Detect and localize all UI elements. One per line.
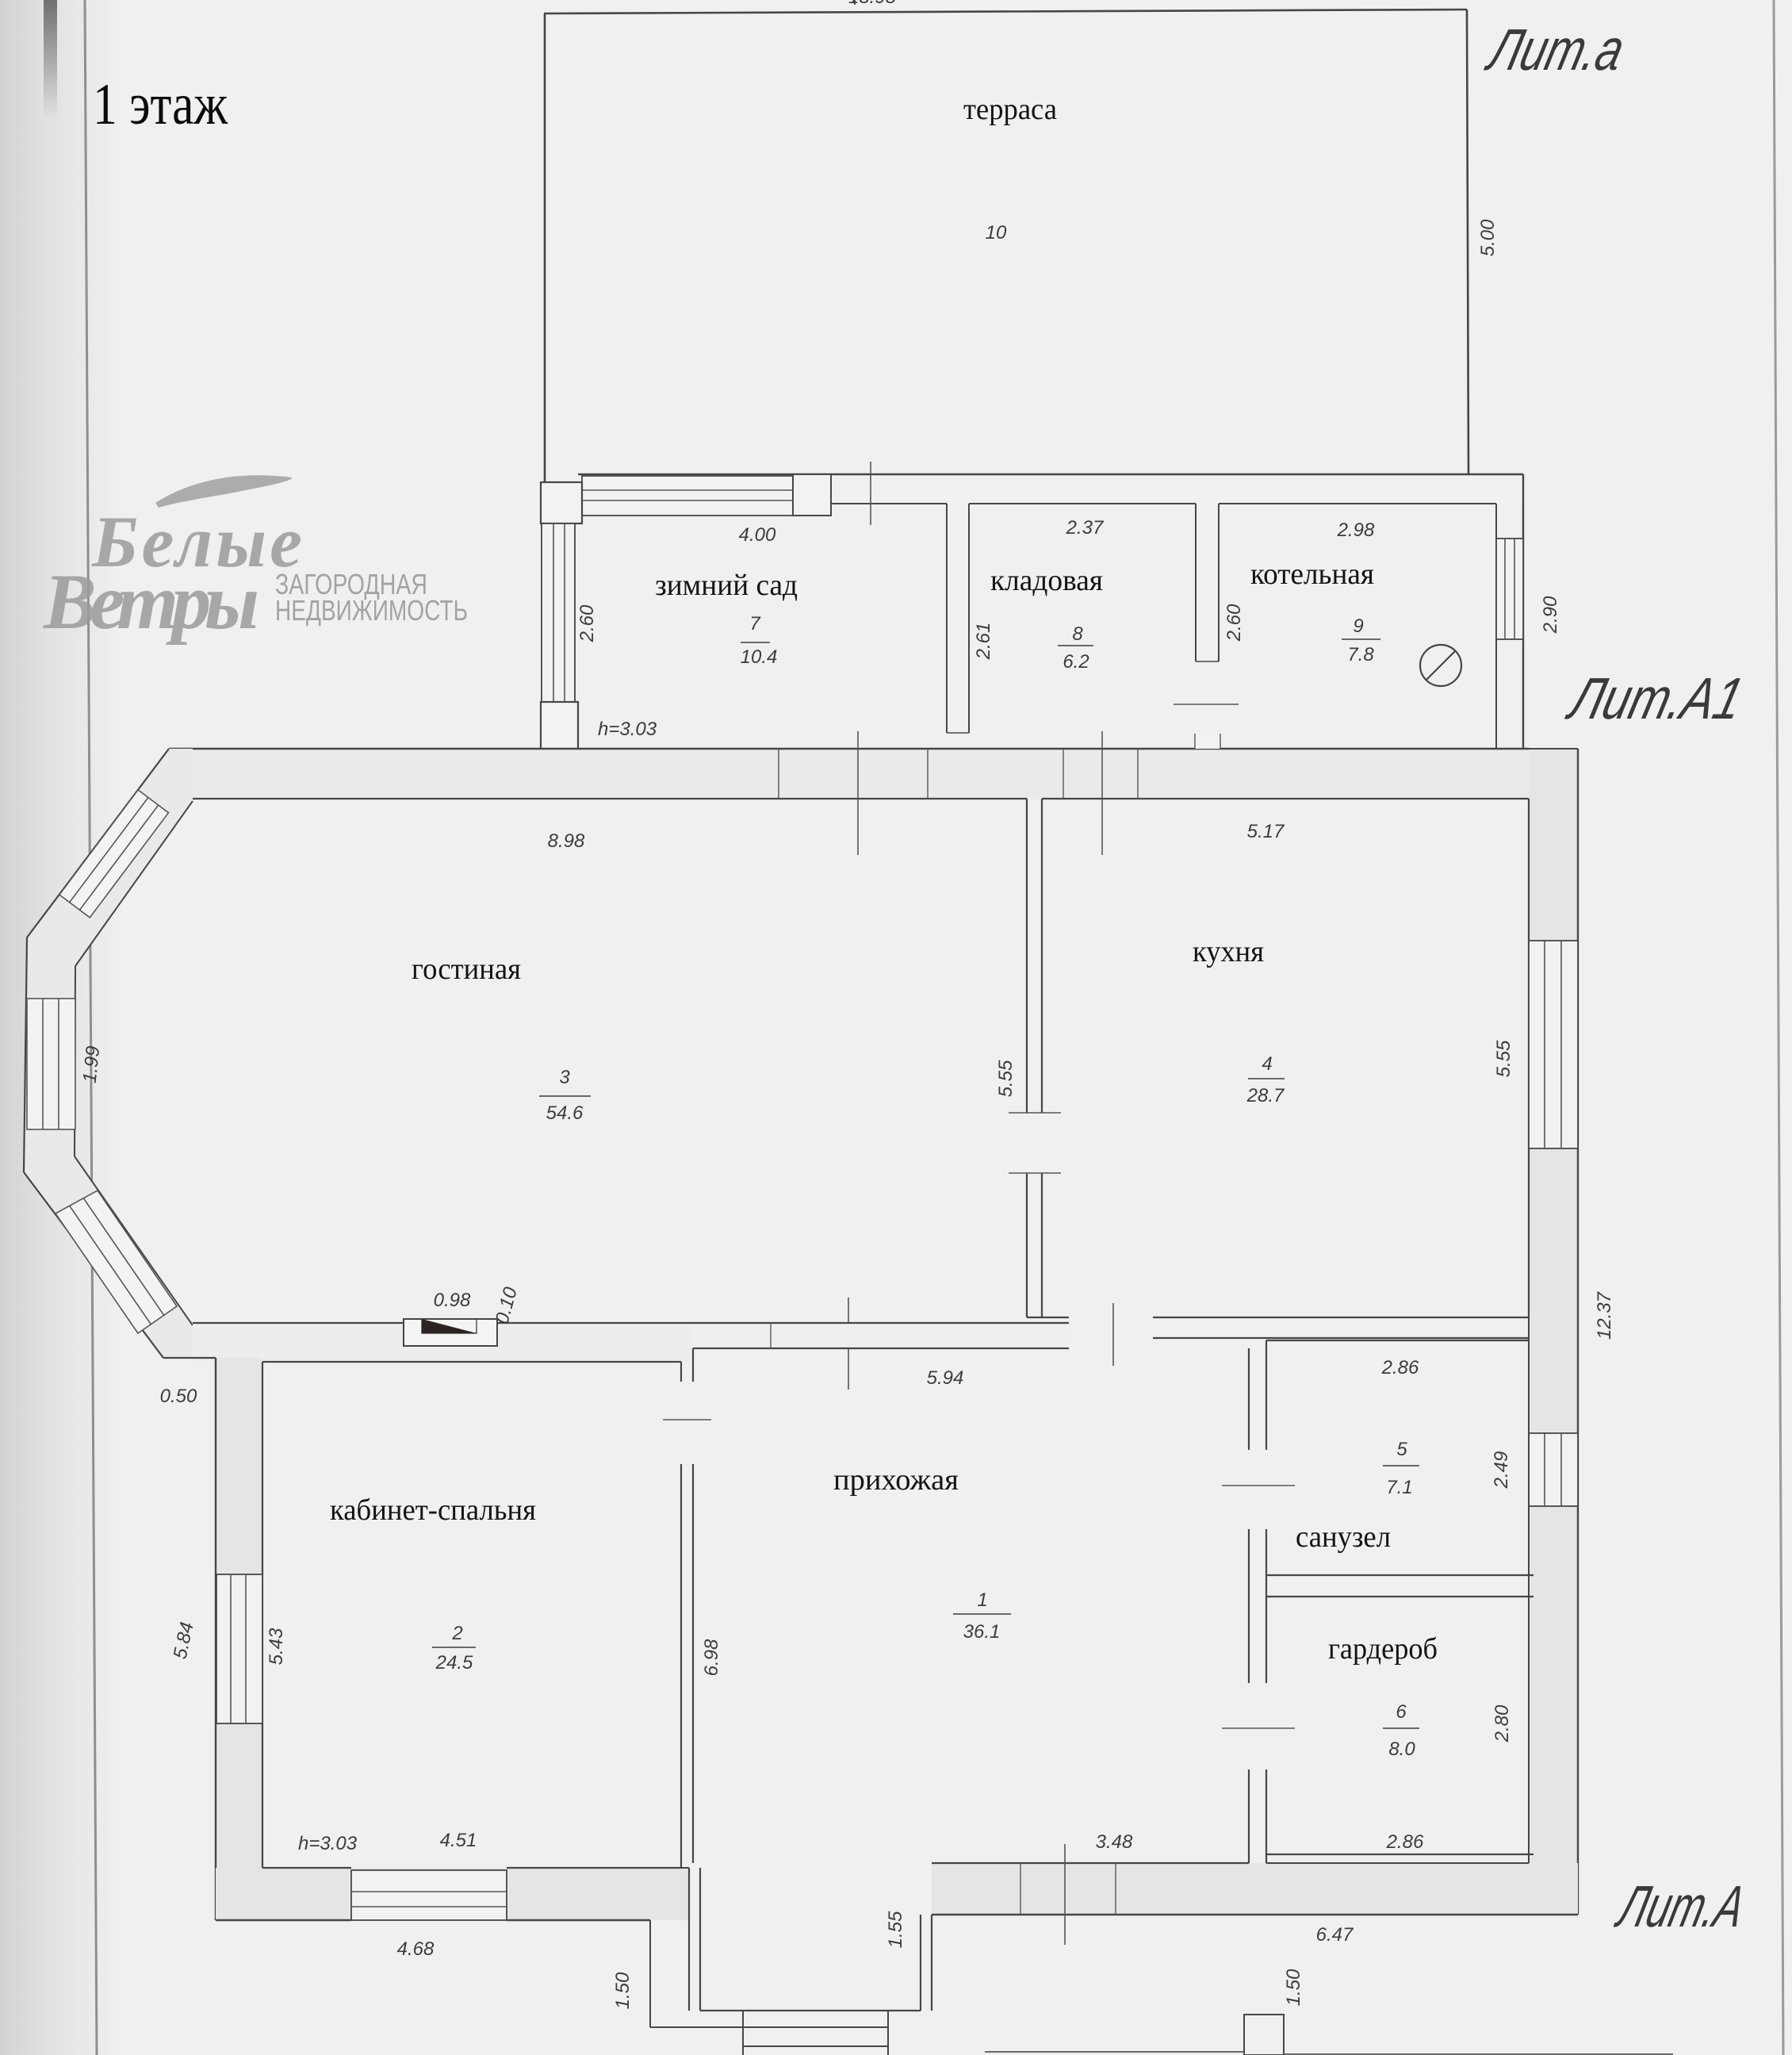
svg-text:5.55: 5.55 xyxy=(995,1060,1017,1097)
svg-text:кладовая: кладовая xyxy=(990,564,1103,597)
svg-text:10.4: 10.4 xyxy=(741,646,778,668)
svg-text:1 этаж: 1 этаж xyxy=(93,72,228,137)
svg-text:НЕДВИЖИМОСТЬ: НЕДВИЖИМОСТЬ xyxy=(275,594,468,627)
svg-text:Лит.А1: Лит.А1 xyxy=(1561,665,1750,731)
svg-text:3: 3 xyxy=(559,1067,570,1088)
svg-text:1.99: 1.99 xyxy=(79,1045,105,1084)
svg-text:1.50: 1.50 xyxy=(1283,1969,1304,2006)
svg-text:4: 4 xyxy=(1262,1053,1272,1075)
svg-text:2.61: 2.61 xyxy=(973,623,994,661)
svg-text:1.50: 1.50 xyxy=(612,1972,634,2009)
svg-text:гардероб: гардероб xyxy=(1328,1632,1438,1666)
svg-text:7.1: 7.1 xyxy=(1386,1477,1412,1498)
svg-text:1: 1 xyxy=(977,1589,987,1611)
svg-text:терраса: терраса xyxy=(963,93,1057,126)
svg-text:2.86: 2.86 xyxy=(1386,1831,1424,1853)
svg-text:зимний сад: зимний сад xyxy=(655,569,798,602)
svg-text:2.98: 2.98 xyxy=(1337,520,1375,541)
svg-text:2.86: 2.86 xyxy=(1381,1357,1419,1378)
svg-text:6.98: 6.98 xyxy=(701,1639,722,1676)
svg-text:h=3.03: h=3.03 xyxy=(598,719,657,740)
svg-text:8.98: 8.98 xyxy=(548,830,585,852)
svg-text:гостиная: гостиная xyxy=(412,953,521,986)
svg-text:7.8: 7.8 xyxy=(1347,644,1374,665)
svg-text:28.7: 28.7 xyxy=(1246,1085,1285,1106)
svg-text:2.80: 2.80 xyxy=(1491,1704,1513,1743)
svg-text:2.60: 2.60 xyxy=(1223,604,1245,642)
svg-text:5.43: 5.43 xyxy=(266,1628,287,1665)
svg-text:2.37: 2.37 xyxy=(1066,517,1105,539)
svg-text:24.5: 24.5 xyxy=(435,1652,473,1674)
svg-text:5.00: 5.00 xyxy=(1477,219,1499,256)
svg-text:Ветры: Ветры xyxy=(43,558,259,646)
svg-text:котельная: котельная xyxy=(1250,558,1374,591)
svg-text:8: 8 xyxy=(1072,623,1083,645)
svg-text:прихожая: прихожая xyxy=(833,1463,959,1497)
svg-text:36.1: 36.1 xyxy=(963,1621,1001,1643)
svg-text:5: 5 xyxy=(1396,1439,1407,1460)
svg-text:5.94: 5.94 xyxy=(927,1367,964,1389)
svg-text:6: 6 xyxy=(1396,1701,1407,1723)
svg-text:0.98: 0.98 xyxy=(434,1290,471,1311)
svg-text:8.0: 8.0 xyxy=(1388,1739,1415,1760)
svg-text:2.90: 2.90 xyxy=(1540,596,1561,634)
svg-text:18.98: 18.98 xyxy=(848,0,897,8)
svg-text:2: 2 xyxy=(451,1623,462,1644)
svg-text:4.00: 4.00 xyxy=(739,524,776,546)
svg-text:7: 7 xyxy=(749,613,761,635)
svg-text:2.60: 2.60 xyxy=(576,604,598,642)
svg-text:h=3.03: h=3.03 xyxy=(298,1833,358,1854)
svg-text:54.6: 54.6 xyxy=(546,1102,584,1124)
svg-text:0.50: 0.50 xyxy=(160,1386,197,1407)
svg-text:3.48: 3.48 xyxy=(1096,1831,1133,1853)
svg-text:12.37: 12.37 xyxy=(1594,1290,1615,1340)
svg-text:санузел: санузел xyxy=(1296,1520,1391,1554)
svg-text:5.55: 5.55 xyxy=(1493,1040,1514,1077)
svg-text:кабинет-спальня: кабинет-спальня xyxy=(330,1493,536,1527)
svg-text:кухня: кухня xyxy=(1193,935,1264,968)
svg-text:4.68: 4.68 xyxy=(397,1938,435,1960)
svg-text:9: 9 xyxy=(1353,615,1363,637)
svg-text:6.47: 6.47 xyxy=(1316,1924,1354,1946)
svg-text:Лит.А: Лит.А xyxy=(1610,1873,1752,1939)
svg-text:10: 10 xyxy=(986,222,1007,243)
svg-text:Лит.а: Лит.а xyxy=(1480,17,1631,82)
svg-text:2.49: 2.49 xyxy=(1491,1451,1512,1489)
svg-text:4.51: 4.51 xyxy=(440,1830,477,1851)
svg-text:1.55: 1.55 xyxy=(885,1911,906,1948)
svg-text:5.17: 5.17 xyxy=(1247,821,1285,842)
svg-text:6.2: 6.2 xyxy=(1063,651,1089,673)
